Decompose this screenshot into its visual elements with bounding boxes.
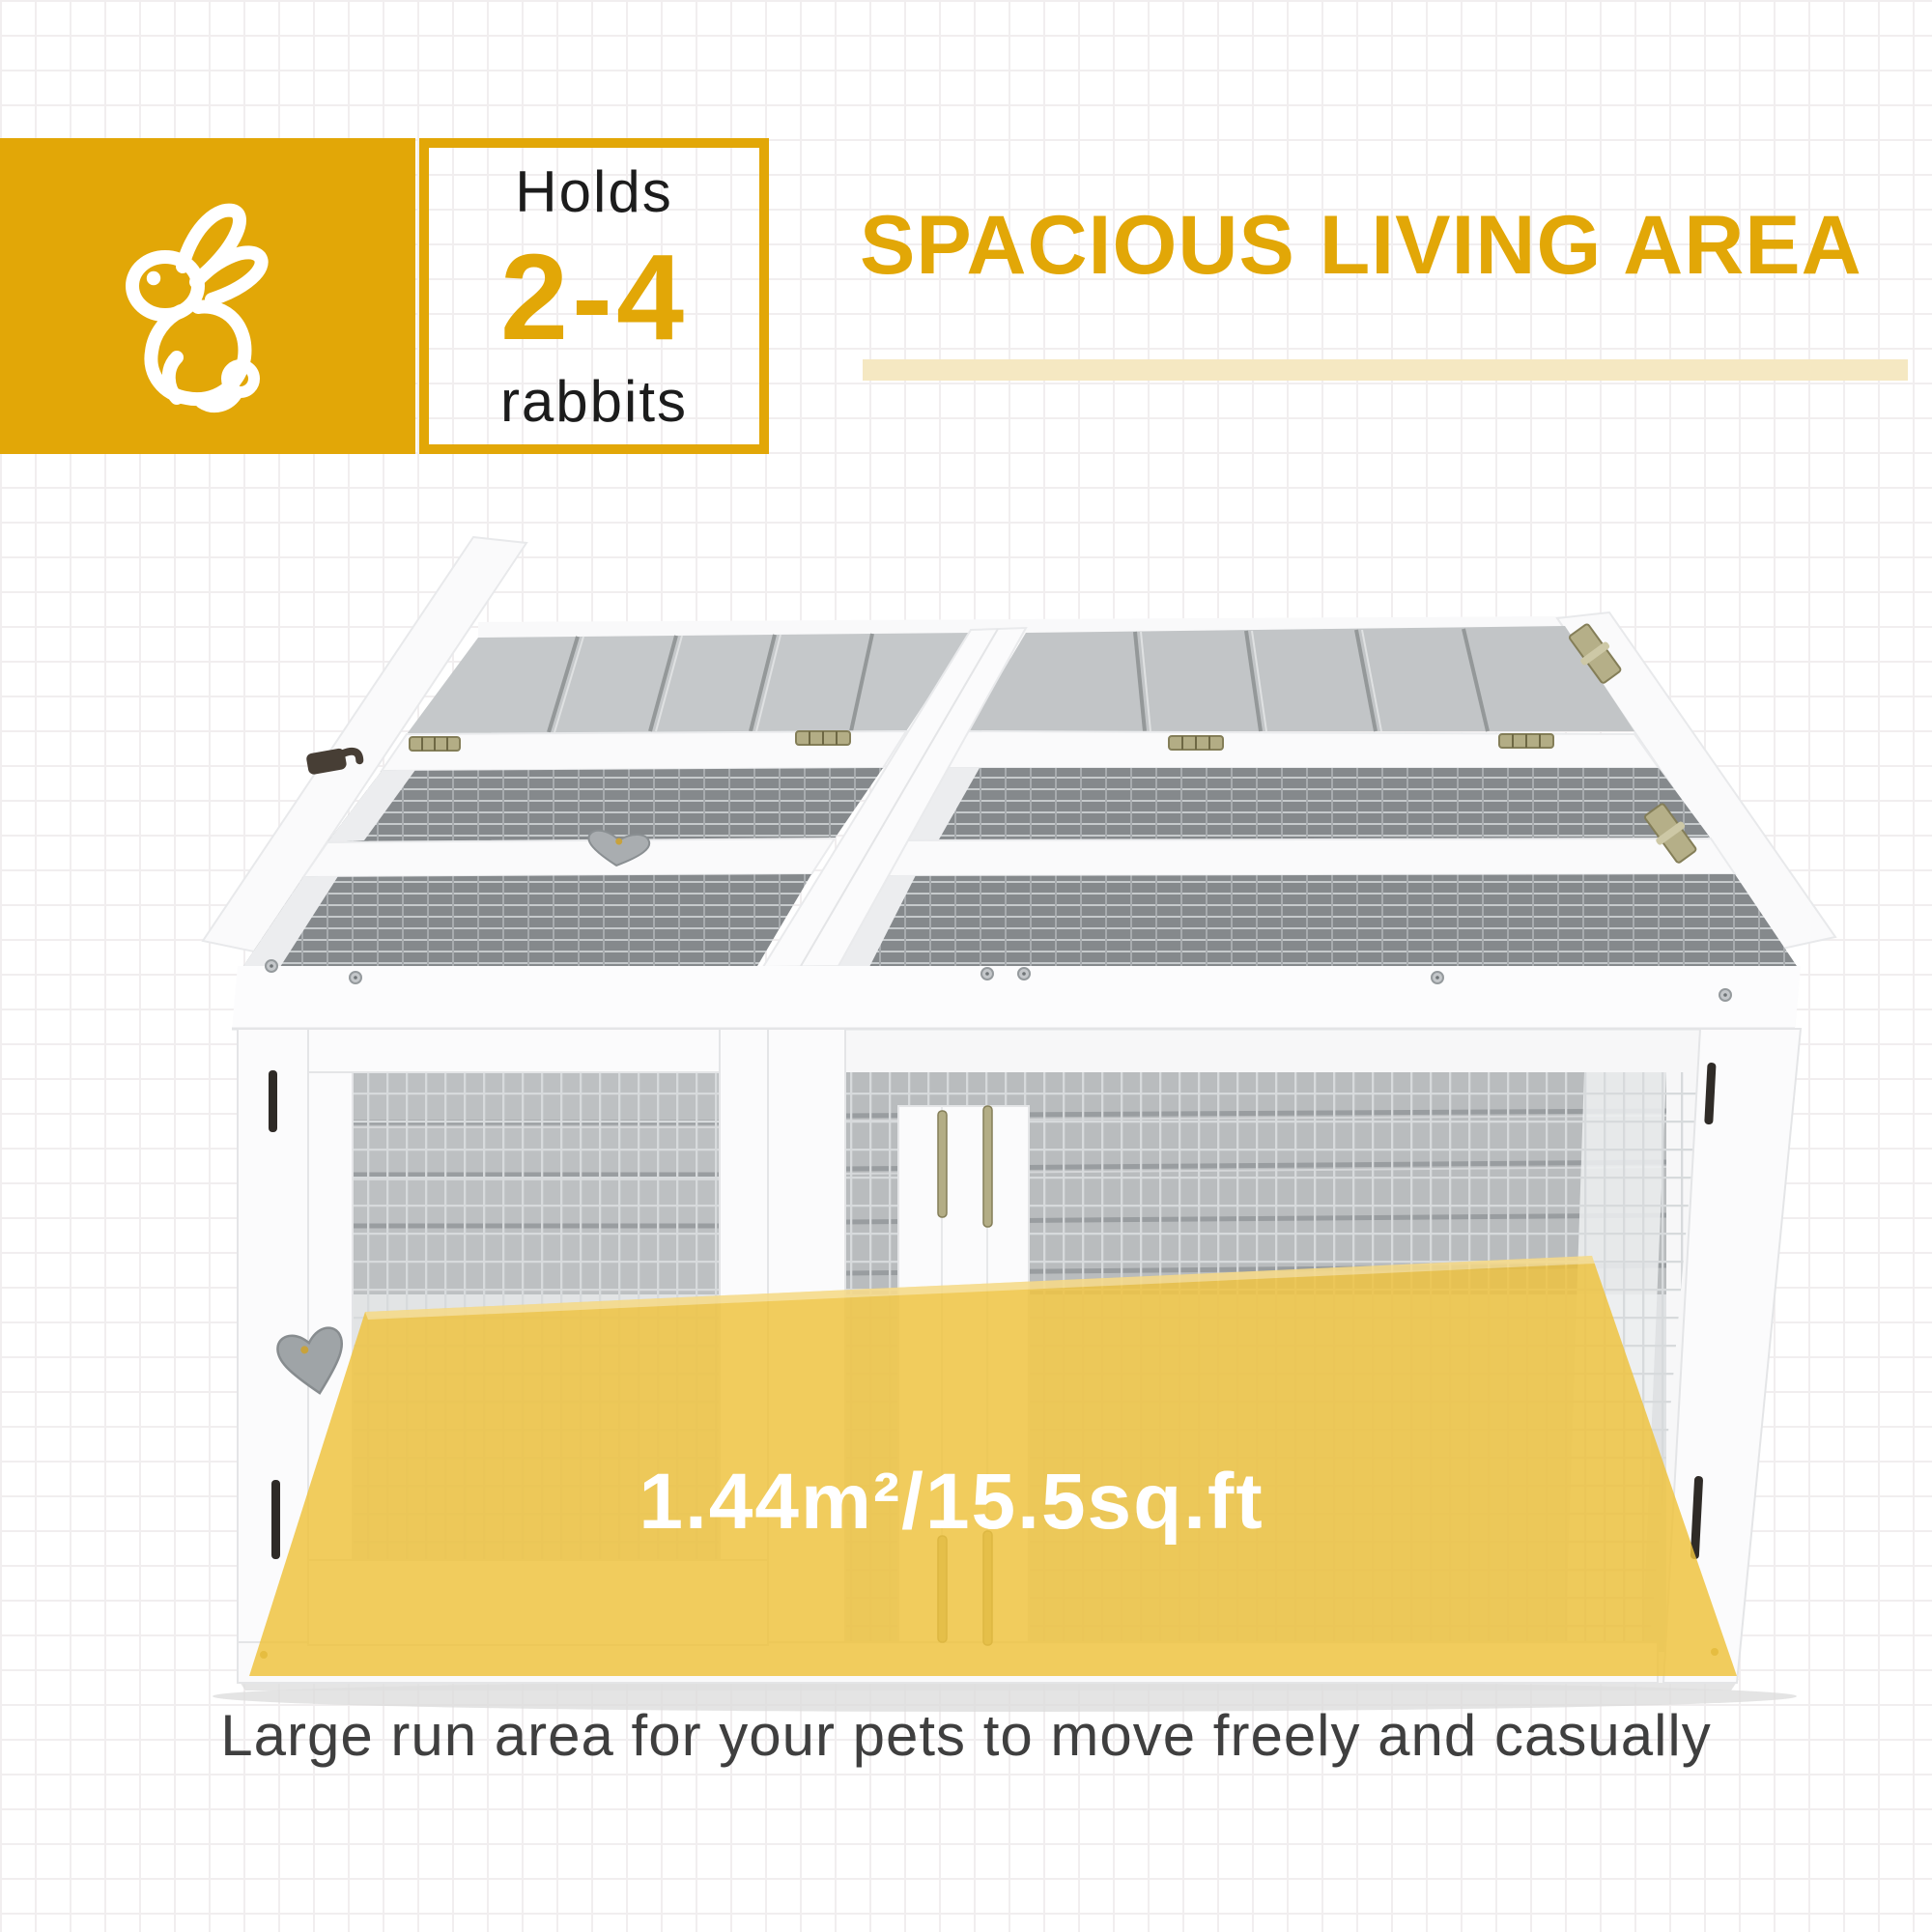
- page-title: SPACIOUS LIVING AREA: [860, 198, 1862, 294]
- badge-holds-label: Holds: [515, 163, 672, 221]
- roof-mesh-strip-a: [327, 768, 1711, 842]
- roof-mesh-strip-b: [241, 874, 1797, 969]
- badge-count-range: 2-4: [500, 245, 688, 349]
- badge-animal-label: rabbits: [500, 373, 688, 431]
- caption-text: Large run area for your pets to move fre…: [0, 1702, 1932, 1769]
- roof-plank-deck: [407, 626, 1634, 734]
- heading-underline: [863, 359, 1908, 381]
- floor-highlight-overlay: 1.44m²/15.5sq.ft: [249, 1256, 1737, 1676]
- capacity-badge-tile: [0, 138, 415, 454]
- left-door-top-rail: [308, 1029, 765, 1072]
- hutch-roof: [203, 537, 1835, 969]
- roof-rail-b-left: [303, 838, 835, 877]
- capacity-badge-box: Holds 2-4 rabbits: [419, 138, 769, 454]
- product-infographic: 1.44m²/15.5sq.ft Holds 2-4 rabbits SPACI…: [0, 0, 1932, 1932]
- floor-area-label: 1.44m²/15.5sq.ft: [639, 1458, 1264, 1546]
- front-top-beam: [232, 966, 1801, 1029]
- roof-rail-b-right: [882, 838, 1735, 876]
- rabbit-icon: [0, 138, 415, 454]
